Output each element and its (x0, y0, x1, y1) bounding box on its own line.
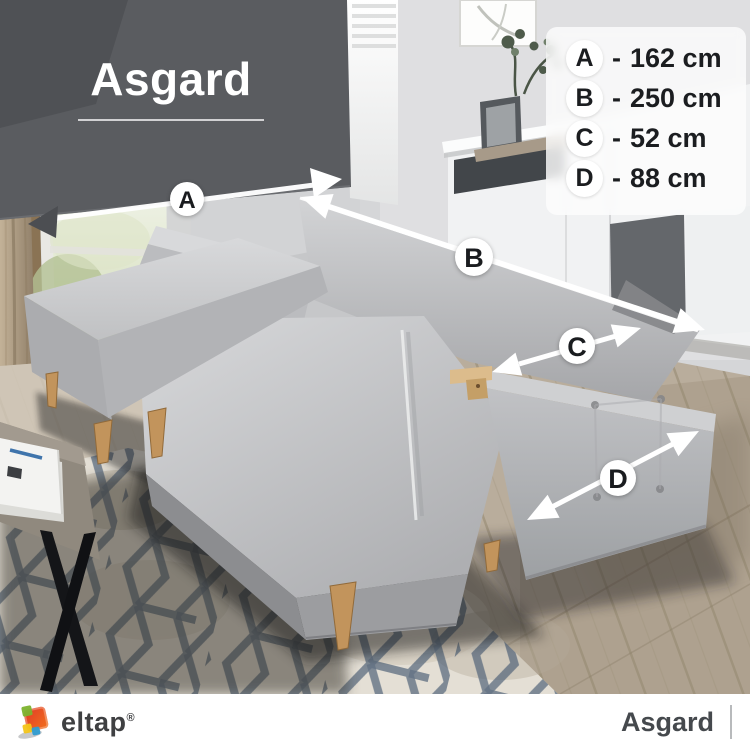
dimension-letter: C (575, 124, 593, 153)
svg-text:D: D (608, 464, 628, 494)
dimension-letter: B (575, 84, 593, 113)
dimension-label-a: A (170, 182, 204, 216)
dimension-letter-badge: A (566, 40, 603, 77)
footer-bar: eltap® Asgard (0, 694, 750, 750)
dimension-value: 162 cm (630, 43, 722, 74)
dimension-separator: - (612, 163, 621, 194)
dimension-value: 88 cm (630, 163, 707, 194)
dimension-letter-badge: D (566, 160, 603, 197)
dimension-row-c: C - 52 cm (566, 120, 746, 157)
product-name: Asgard (621, 707, 714, 738)
dimension-label-d: D (600, 460, 636, 496)
dimension-letter: A (575, 44, 593, 73)
brand-name-text: eltap (61, 707, 127, 737)
dimension-label-c: C (559, 328, 595, 364)
dimension-value: 52 cm (630, 123, 707, 154)
svg-text:C: C (567, 332, 587, 362)
dimension-separator: - (612, 123, 621, 154)
svg-text:B: B (464, 243, 484, 273)
dimension-row-b: B - 250 cm (566, 80, 746, 117)
dimension-separator: - (612, 43, 621, 74)
dimensions-legend: A - 162 cm B - 250 cm C - 52 cm D - 88 c… (546, 27, 746, 215)
logo-square-blue (31, 726, 40, 735)
dimension-label-b: B (455, 238, 493, 276)
brand-logo: eltap® (18, 703, 135, 741)
dimension-row-d: D - 88 cm (566, 160, 746, 197)
product-image: A B C D Asgard A - 162 cm B (0, 0, 750, 750)
dimension-letter-badge: C (566, 120, 603, 157)
eltap-logo-icon (18, 703, 54, 741)
title-block: Asgard (60, 54, 282, 121)
footer-divider (730, 705, 732, 739)
wall-art (460, 0, 536, 46)
title-underline (78, 119, 264, 121)
registered-mark: ® (127, 712, 136, 724)
dimension-value: 250 cm (630, 83, 722, 114)
dimension-letter: D (575, 164, 593, 193)
footer-right: Asgard (621, 705, 732, 739)
brand-name: eltap® (61, 707, 135, 738)
dimension-row-a: A - 162 cm (566, 40, 746, 77)
svg-text:A: A (178, 187, 195, 214)
page-title: Asgard (60, 54, 282, 105)
dimension-separator: - (612, 83, 621, 114)
dimension-letter-badge: B (566, 80, 603, 117)
logo-square-green (21, 705, 33, 717)
